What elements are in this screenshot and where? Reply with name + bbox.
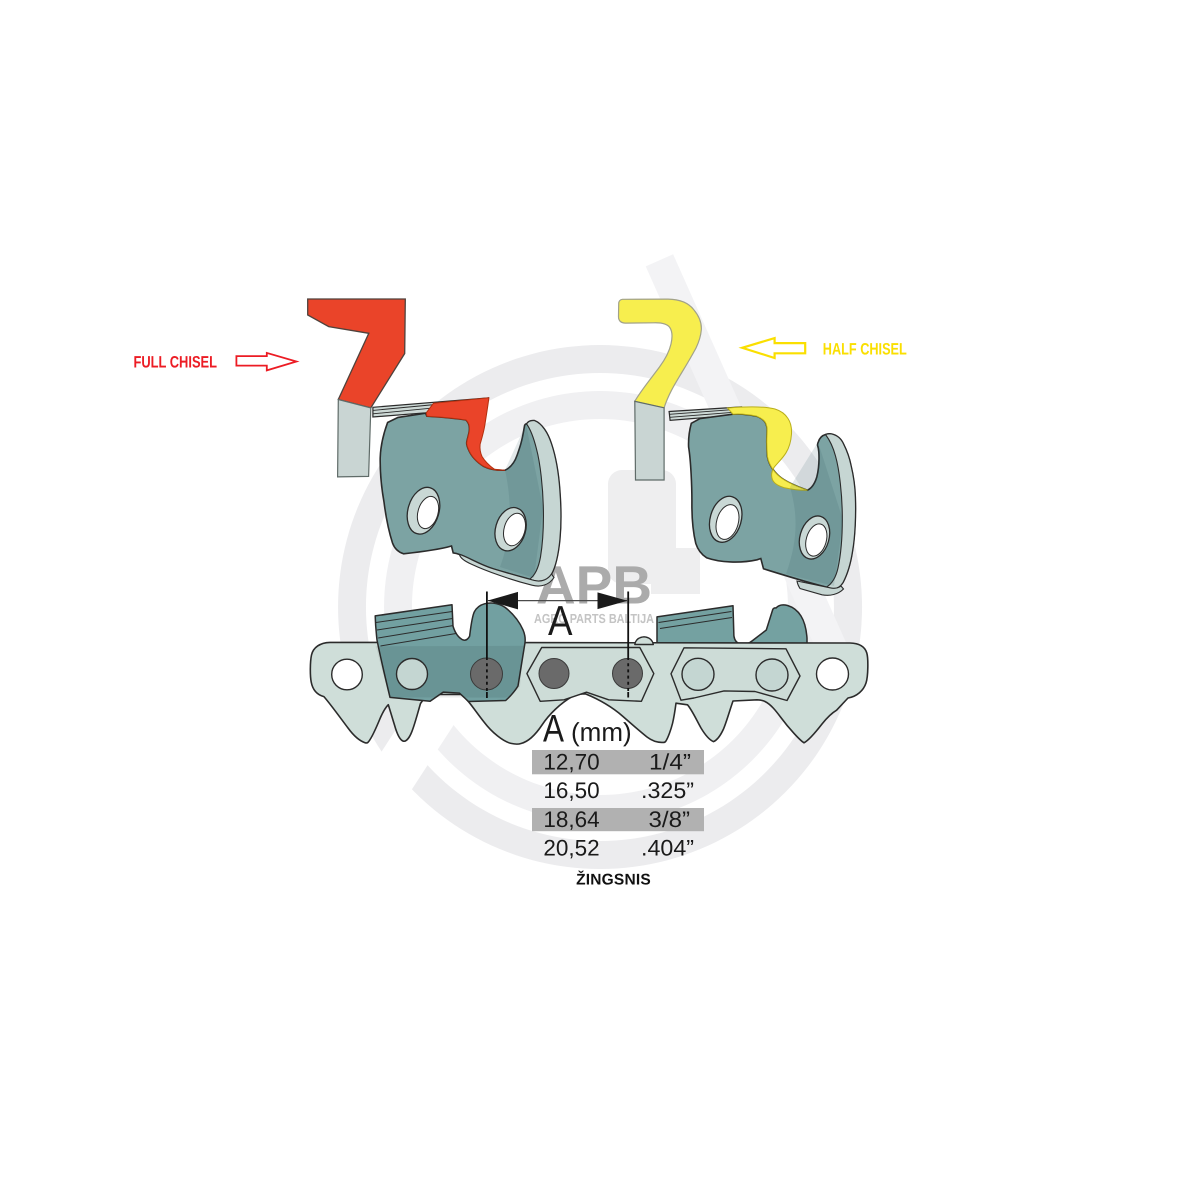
svg-text:(mm): (mm) — [571, 717, 632, 747]
svg-text:20,52: 20,52 — [543, 835, 599, 860]
svg-text:1/4”: 1/4” — [649, 749, 691, 774]
svg-text:12,70: 12,70 — [543, 749, 599, 774]
svg-text:A: A — [548, 597, 573, 644]
svg-text:18,64: 18,64 — [543, 807, 599, 832]
svg-text:HALF CHISEL: HALF CHISEL — [823, 340, 907, 358]
svg-text:3/8”: 3/8” — [649, 807, 691, 832]
svg-text:FULL CHISEL: FULL CHISEL — [134, 353, 218, 371]
svg-text:.404”: .404” — [641, 835, 694, 860]
svg-text:ŽINGSNIS: ŽINGSNIS — [576, 871, 651, 889]
svg-text:16,50: 16,50 — [543, 778, 599, 803]
svg-text:A: A — [543, 708, 564, 751]
svg-text:.325”: .325” — [641, 778, 694, 803]
